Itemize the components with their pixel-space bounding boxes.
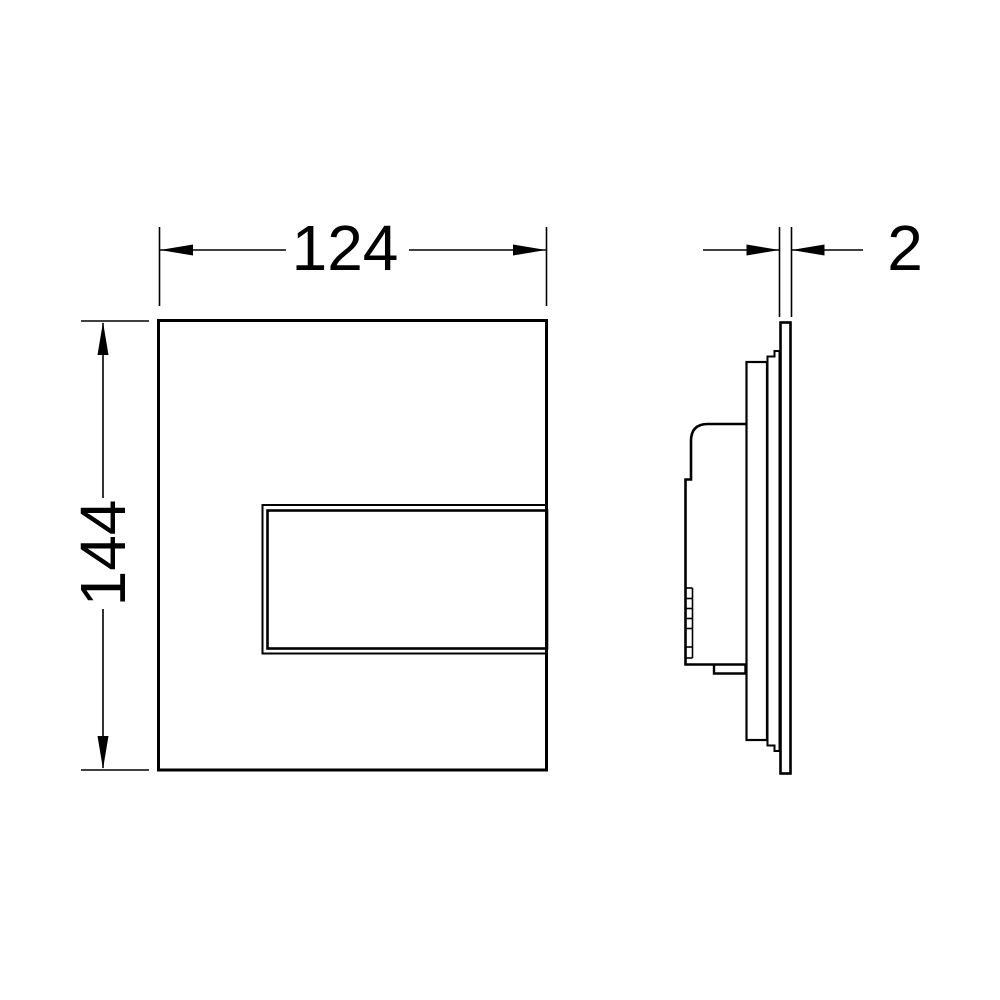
thickness-dimension: 2 <box>703 212 923 317</box>
arrow-down-icon <box>98 736 109 769</box>
arrow-up-icon <box>98 322 109 355</box>
mechanism-housing-profile <box>686 424 747 665</box>
height-dimension: 144 <box>67 321 149 770</box>
technical-drawing: 124 144 <box>0 0 1000 1000</box>
arrow-right-icon <box>747 245 780 256</box>
glass-panel <box>781 323 791 774</box>
carrier-plate <box>768 351 780 751</box>
side-view: 2 <box>686 212 923 774</box>
flush-button <box>268 511 548 649</box>
width-label: 124 <box>292 212 399 284</box>
button-recess-outline <box>263 505 548 654</box>
mounting-frame <box>747 362 768 740</box>
arrow-left-icon <box>160 245 193 256</box>
front-view: 124 144 <box>67 212 547 770</box>
height-label: 144 <box>67 500 139 607</box>
width-dimension: 124 <box>160 212 547 306</box>
mounting-foot <box>714 665 746 674</box>
arrow-right-icon <box>513 245 546 256</box>
plate-outline <box>159 321 547 771</box>
drawing-canvas: 124 144 <box>0 0 1000 1000</box>
thickness-label: 2 <box>887 212 923 284</box>
arrow-left-icon <box>792 245 825 256</box>
